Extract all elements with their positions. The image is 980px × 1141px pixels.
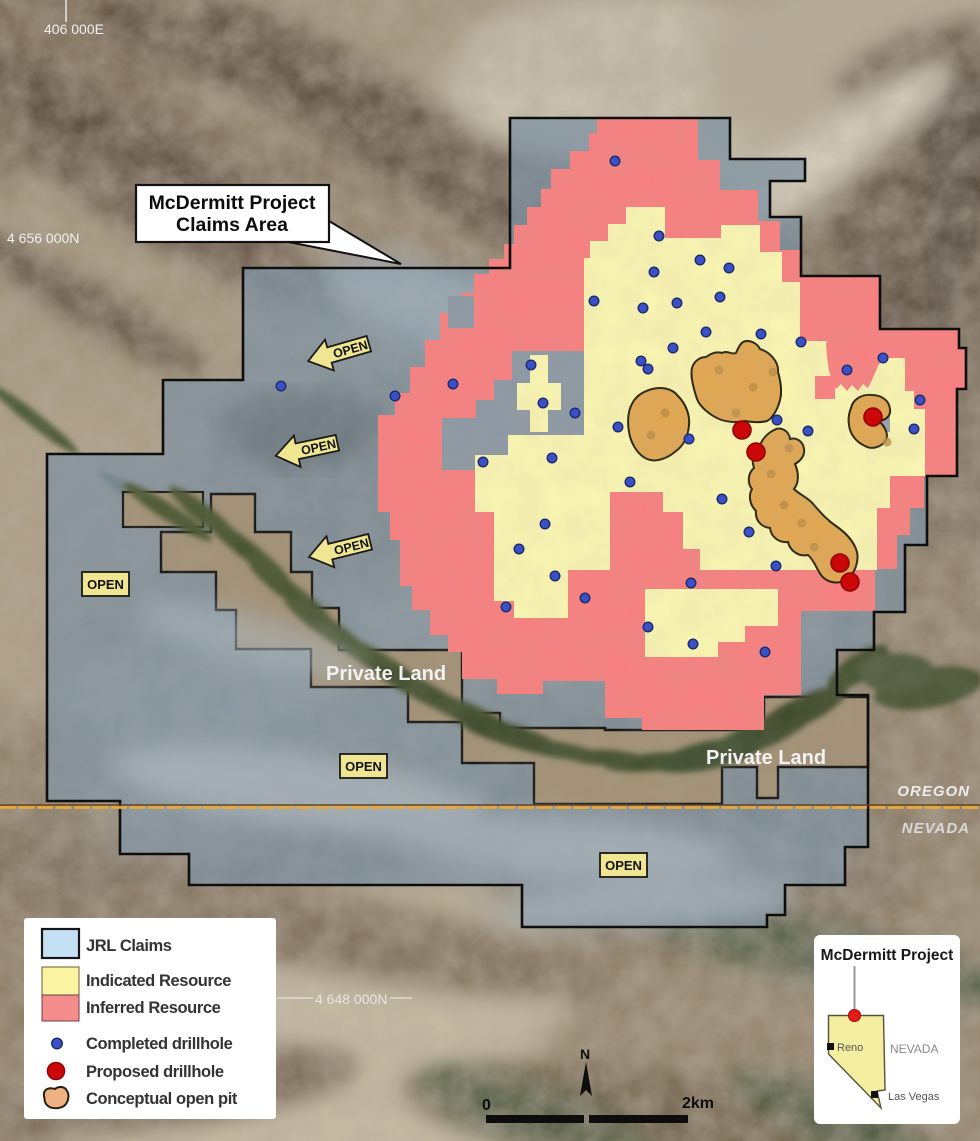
svg-text:4 656 000N: 4 656 000N bbox=[7, 230, 79, 246]
svg-text:Indicated Resource: Indicated Resource bbox=[86, 972, 231, 990]
svg-text:OPEN: OPEN bbox=[345, 759, 382, 774]
svg-text:N: N bbox=[580, 1046, 590, 1062]
svg-text:NEVADA: NEVADA bbox=[890, 1042, 938, 1056]
svg-text:McDermitt Project: McDermitt Project bbox=[149, 192, 316, 214]
svg-text:Claims Area: Claims Area bbox=[176, 214, 288, 236]
svg-text:OPEN: OPEN bbox=[87, 577, 124, 592]
svg-text:Reno: Reno bbox=[837, 1042, 863, 1054]
svg-text:Proposed drillhole: Proposed drillhole bbox=[86, 1063, 224, 1081]
svg-text:OPEN: OPEN bbox=[605, 858, 642, 873]
svg-text:Inferred Resource: Inferred Resource bbox=[86, 999, 221, 1017]
svg-text:JRL Claims: JRL Claims bbox=[86, 937, 172, 955]
svg-text:0: 0 bbox=[482, 1097, 491, 1114]
svg-text:Las Vegas: Las Vegas bbox=[888, 1091, 940, 1103]
svg-text:McDermitt Project: McDermitt Project bbox=[821, 947, 954, 964]
svg-text:Completed drillhole: Completed drillhole bbox=[86, 1035, 233, 1053]
svg-text:2km: 2km bbox=[682, 1095, 714, 1112]
svg-text:Private Land: Private Land bbox=[706, 747, 826, 769]
svg-text:NEVADA: NEVADA bbox=[902, 820, 970, 837]
svg-text:OREGON: OREGON bbox=[897, 783, 970, 800]
svg-text:Conceptual open pit: Conceptual open pit bbox=[86, 1090, 238, 1108]
svg-text:Private Land: Private Land bbox=[326, 663, 446, 685]
svg-text:4 648 000N: 4 648 000N bbox=[315, 991, 387, 1007]
svg-text:406 000E: 406 000E bbox=[44, 21, 104, 37]
